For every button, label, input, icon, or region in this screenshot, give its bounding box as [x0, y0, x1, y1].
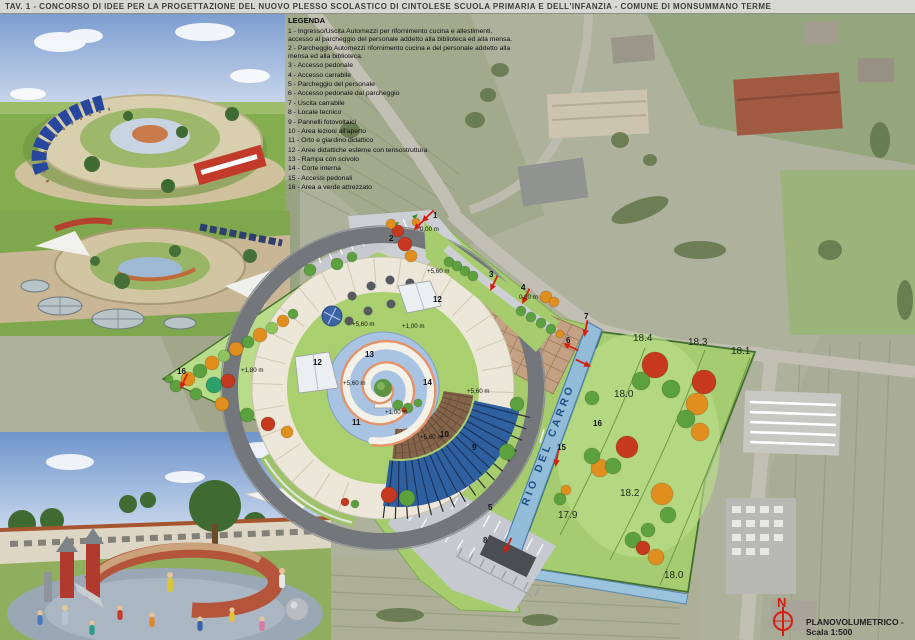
legend-item: 4 - Accesso carrabile: [288, 72, 514, 80]
legend-heading: LEGENDA: [288, 17, 514, 26]
render-playground-view: [0, 432, 331, 640]
aerial-field: [780, 170, 915, 335]
legend-item: 14 - Corte interna: [288, 165, 514, 173]
drawing-caption: PLANOVOLUMETRICO - Scala 1:500: [806, 617, 915, 637]
render3-art: [0, 432, 331, 640]
legend-item: 1 - Ingresso/Uscita Automezzi per riforn…: [288, 28, 514, 44]
legend-item: 7 - Uscita carrabile: [288, 100, 514, 108]
legend-item: 11 - Orto e giardino didattico: [288, 137, 514, 145]
render-courtyard-view: [0, 211, 290, 336]
render-aerial-bird-view: [0, 14, 285, 211]
legend-item: 9 - Pannelli fotovoltaici: [288, 119, 514, 127]
render3-tree-trunk: [212, 524, 218, 546]
legend-item: 6 - Accesso pedonale dal parcheggio: [288, 90, 514, 98]
render3-ball-highlight: [291, 602, 298, 609]
legend-item: 10 - Area lezioni all'aperto: [288, 128, 514, 136]
legend: LEGENDA 1 - Ingresso/Uscita Automezzi pe…: [288, 17, 514, 194]
north-label: N: [777, 595, 786, 610]
legend-item: 16 - Area a verde attrezzato: [288, 184, 514, 192]
render1-art: [0, 14, 285, 211]
north-arrow: N: [764, 594, 804, 638]
presentation-board: TAV. 1 - CONCORSO DI IDEE PER LA PROGETT…: [0, 0, 915, 640]
legend-item: 12 - Aree didattiche esterne con tensost…: [288, 147, 514, 155]
legend-item: 5 - Parcheggio del personale: [288, 81, 514, 89]
render2-art: [0, 211, 290, 336]
render3-ball: [286, 598, 308, 620]
legend-item: 13 - Rampa con scivolo: [288, 156, 514, 164]
legend-item: 3 - Accesso pedonale: [288, 62, 514, 70]
board-title: TAV. 1 - CONCORSO DI IDEE PER LA PROGETT…: [0, 0, 915, 14]
legend-item: 15 - Accessi pedonali: [288, 175, 514, 183]
legend-item: 2 - Parcheggio Automezzi rifornimento cu…: [288, 45, 514, 61]
legend-item: 8 - Locale tecnico: [288, 109, 514, 117]
render1-spiral-core: [132, 125, 168, 143]
